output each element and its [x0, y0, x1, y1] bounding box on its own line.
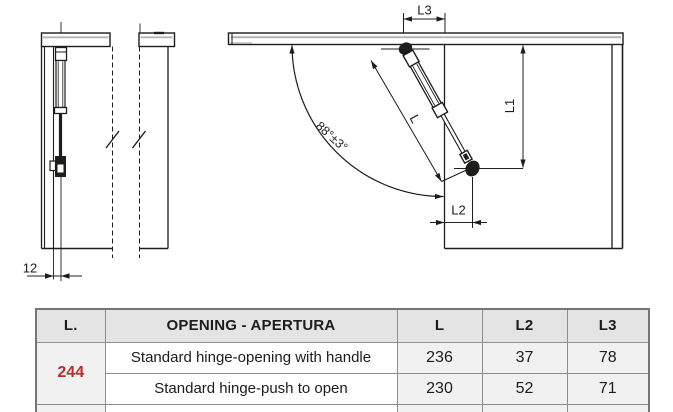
value-l2: 52: [482, 373, 567, 404]
opening-description: Standard hinge-push to open: [105, 373, 397, 404]
dim-label-angle: 88°±3°: [313, 119, 350, 155]
value-l2: 37: [482, 342, 567, 373]
table-header-row: L. OPENING - APERTURA L L2 L3: [36, 309, 649, 342]
dim-label-offset: 12: [23, 261, 37, 276]
left-view-closed-door: 12: [23, 22, 175, 281]
dim-label-l: L: [407, 112, 424, 126]
gas-spring-closed: [50, 48, 67, 178]
value-l3: 78: [567, 342, 649, 373]
col-header-l: L: [397, 309, 482, 342]
dim-label-l1: L1: [502, 99, 517, 113]
spec-table: L. OPENING - APERTURA L L2 L3 244 Standa…: [35, 308, 650, 412]
value-l3: 71: [567, 373, 649, 404]
dimension-l1: [520, 45, 525, 168]
technical-drawing: 12 88°±3°: [0, 0, 673, 300]
length-group-value: 244: [36, 342, 105, 404]
opening-description: Standard hinge-opening with handle: [105, 342, 397, 373]
table-row: Standard hinge-push to open 230 52 71: [36, 373, 649, 404]
table-row: 244 Standard hinge-opening with handle 2…: [36, 342, 649, 373]
value-l: 236: [397, 342, 482, 373]
gas-spring-open: [403, 50, 474, 164]
value-l: 230: [397, 373, 482, 404]
col-header-opening: OPENING - APERTURA: [105, 309, 397, 342]
open-door-panel: [229, 33, 624, 45]
dim-label-l3: L3: [417, 3, 431, 18]
col-header-length: L.: [36, 309, 105, 342]
dim-label-l2: L2: [451, 203, 465, 218]
col-header-l2: L2: [482, 309, 567, 342]
catalog-page: 12 88°±3°: [0, 0, 673, 412]
table-row-cropped: [36, 404, 649, 412]
col-header-l3: L3: [567, 309, 649, 342]
right-view-open-door: 88°±3° L3: [229, 3, 624, 249]
